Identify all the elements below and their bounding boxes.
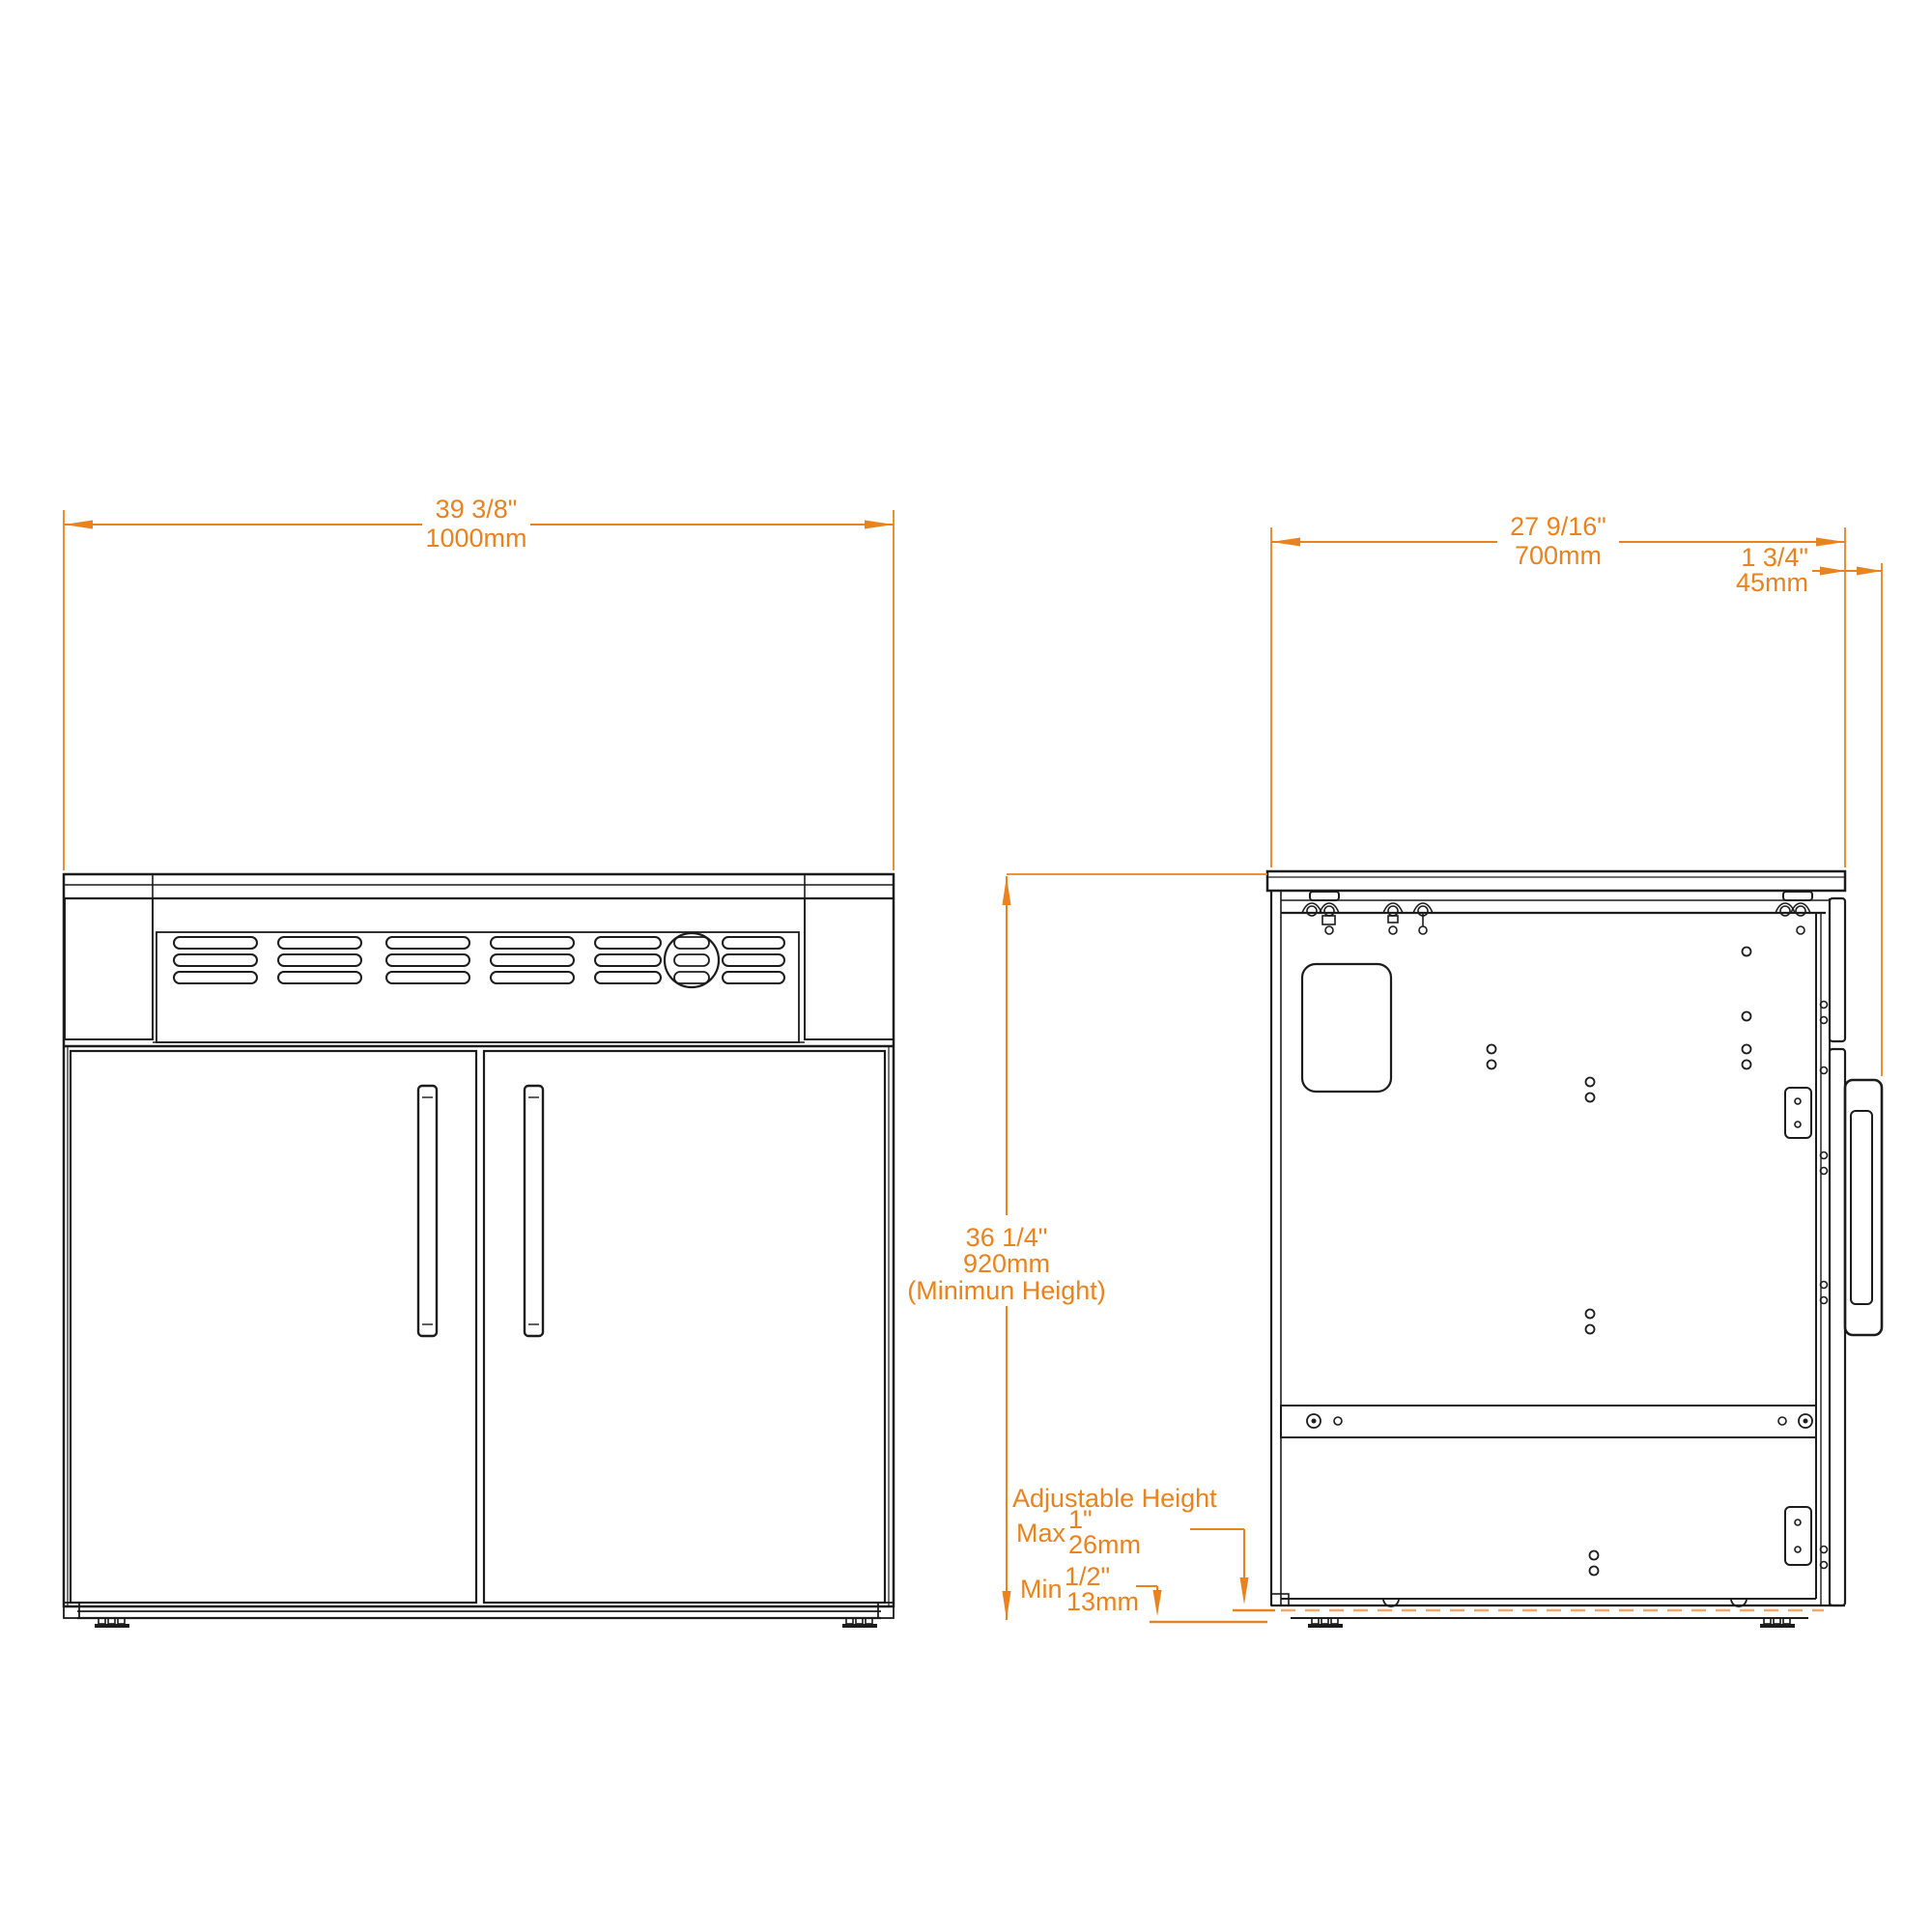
- height-mm: 920mm: [963, 1249, 1050, 1278]
- adjustable-min-mm: 13mm: [1066, 1587, 1139, 1616]
- clip-hole: [1325, 926, 1333, 934]
- vent-slot: [491, 972, 574, 983]
- height-note: (Minimun Height): [907, 1276, 1106, 1305]
- foot-pad: [1308, 1624, 1343, 1628]
- screw-hole: [1743, 948, 1751, 956]
- screw-hole: [1488, 1061, 1496, 1069]
- clip-hole: [1419, 926, 1427, 934]
- vent-slot: [278, 937, 361, 949]
- foot-pad: [842, 1624, 877, 1628]
- arrowhead-down-icon: [1240, 1577, 1249, 1605]
- hood-right-column: [805, 898, 894, 1039]
- mount-tab-right: [1783, 892, 1812, 900]
- front-width-mm: 1000mm: [425, 524, 526, 553]
- arrowhead-down-icon: [1153, 1590, 1162, 1616]
- arrowhead-left-icon: [64, 521, 93, 529]
- height-inches: 36 1/4": [966, 1223, 1048, 1252]
- adjustable-height-title: Adjustable Height: [1012, 1484, 1217, 1513]
- screw-hole: [1743, 1012, 1751, 1021]
- keyhole-circle: [1388, 906, 1398, 916]
- vent-slot-fragment: [674, 937, 709, 949]
- arrowhead-icon: [1820, 567, 1845, 576]
- keyhole-arc: [1320, 903, 1339, 913]
- dimension-front-width: 39 3/8" 1000mm: [64, 495, 894, 870]
- drawing-canvas: 39 3/8" 1000mm 27 9/16" 700mm 1 3/4" 45m…: [0, 0, 1932, 1932]
- vent-slot-fragment: [674, 972, 709, 983]
- keyhole-arc: [1413, 903, 1433, 913]
- keyhole-circle: [1307, 906, 1317, 916]
- vent-slot: [595, 954, 661, 966]
- foot-pad: [95, 1624, 129, 1628]
- keyhole-circle: [1780, 906, 1790, 916]
- left-door-handle: [418, 1086, 437, 1336]
- screw-hole: [1586, 1078, 1595, 1087]
- arrowhead-down-icon: [1003, 1591, 1011, 1620]
- adjustable-feet-front: [95, 1618, 877, 1628]
- front-corner-bracket-right: [878, 1603, 894, 1618]
- vent-slot: [386, 954, 469, 966]
- side-counter-top: [1267, 871, 1845, 891]
- vent-slot: [491, 954, 574, 966]
- right-door: [484, 1051, 885, 1603]
- side-door-handle: [1845, 1080, 1882, 1335]
- arrowhead-right-icon: [1816, 538, 1845, 547]
- side-view: [1267, 871, 1882, 1628]
- screw-hole: [1590, 1551, 1599, 1560]
- mount-tab-left: [1310, 892, 1339, 900]
- vent-slot: [595, 937, 661, 949]
- screw-hole: [1586, 1310, 1595, 1319]
- clip-hole: [1389, 926, 1397, 934]
- left-door: [71, 1051, 476, 1603]
- front-view: [64, 874, 894, 1628]
- vent-slot: [723, 954, 784, 966]
- vent-slot: [278, 954, 361, 966]
- keyhole-arc: [1302, 903, 1321, 913]
- vent-slot: [174, 954, 257, 966]
- vent-slots: [174, 937, 784, 983]
- vent-slot-fragment: [674, 954, 709, 966]
- door-face-side: [1830, 1049, 1845, 1605]
- keyhole-circle: [1324, 906, 1334, 916]
- screw-hole: [1586, 1325, 1595, 1334]
- vent-slot: [491, 937, 574, 949]
- keyhole-slots: [1302, 903, 1810, 934]
- door-thickness-mm: 45mm: [1736, 568, 1808, 597]
- clip-hole: [1797, 926, 1804, 934]
- screw-hole: [1590, 1567, 1599, 1576]
- vent-slot: [595, 972, 661, 983]
- dimensions: 39 3/8" 1000mm 27 9/16" 700mm 1 3/4" 45m…: [64, 495, 1882, 1622]
- adjustable-feet-side: [1308, 1618, 1795, 1628]
- keyhole-circle: [1796, 906, 1805, 916]
- vent-slot: [386, 972, 469, 983]
- arrowhead-left-icon: [1271, 538, 1300, 547]
- right-door-handle: [525, 1086, 543, 1336]
- dimension-adjustable-height: Adjustable Height Max 1" 26mm Min 1/2" 1…: [1012, 1484, 1275, 1622]
- arrowhead-icon: [1857, 567, 1882, 576]
- screw-hole: [1488, 1045, 1496, 1054]
- adjustable-max-label: Max: [1016, 1519, 1066, 1548]
- vent-slot: [386, 937, 469, 949]
- side-depth-inches: 27 9/16": [1510, 512, 1606, 541]
- screw-holes: [1488, 948, 1828, 1576]
- hinge-plate-top: [1785, 1088, 1811, 1138]
- side-depth-mm: 700mm: [1515, 541, 1602, 570]
- hood-left-column: [65, 898, 153, 1039]
- screw-hole: [1743, 1061, 1751, 1069]
- dimension-door-thickness: 1 3/4" 45mm: [1736, 543, 1882, 1076]
- support-rail: [1281, 1406, 1816, 1437]
- arrowhead-right-icon: [865, 521, 894, 529]
- vent-slot: [174, 937, 257, 949]
- clip-block: [1388, 916, 1398, 923]
- keyhole-arc: [1383, 903, 1403, 913]
- arrowhead-up-icon: [1003, 876, 1011, 905]
- vent-slot: [278, 972, 361, 983]
- vent-cutout: [1302, 964, 1391, 1092]
- hinge-plate-bottom: [1785, 1507, 1811, 1565]
- hood-face-side: [1830, 898, 1845, 1041]
- screw-hole: [1743, 1045, 1751, 1054]
- front-corner-bracket-left: [64, 1603, 79, 1618]
- vent-slot-fragments: [674, 937, 709, 983]
- adjustable-max-mm: 26mm: [1068, 1530, 1141, 1559]
- vent-slot: [723, 972, 784, 983]
- vent-slot: [174, 972, 257, 983]
- vent-slot: [723, 937, 784, 949]
- adjustable-min-label: Min: [1020, 1575, 1063, 1604]
- front-width-inches: 39 3/8": [436, 495, 518, 524]
- foot-pad: [1760, 1624, 1795, 1628]
- clip-block: [1322, 916, 1335, 924]
- screw-hole: [1586, 1094, 1595, 1102]
- control-knob-circle: [665, 933, 719, 987]
